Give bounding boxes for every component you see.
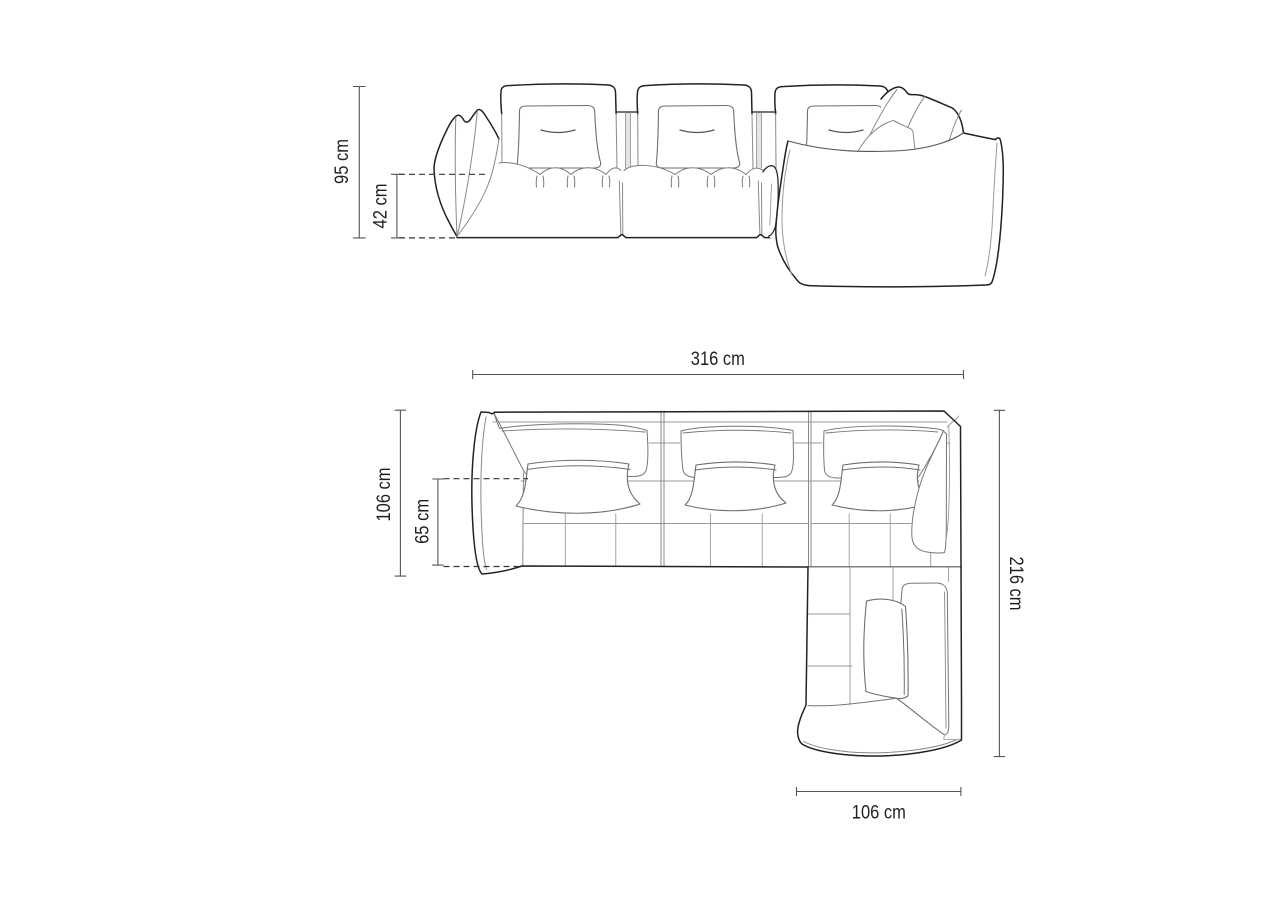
svg-text:65 cm: 65 cm <box>413 499 434 544</box>
svg-text:42 cm: 42 cm <box>371 184 392 229</box>
svg-text:316 cm: 316 cm <box>691 349 745 370</box>
svg-text:216 cm: 216 cm <box>1005 557 1026 611</box>
svg-text:95 cm: 95 cm <box>332 139 353 184</box>
svg-text:106 cm: 106 cm <box>852 802 906 823</box>
svg-text:106 cm: 106 cm <box>374 468 395 522</box>
